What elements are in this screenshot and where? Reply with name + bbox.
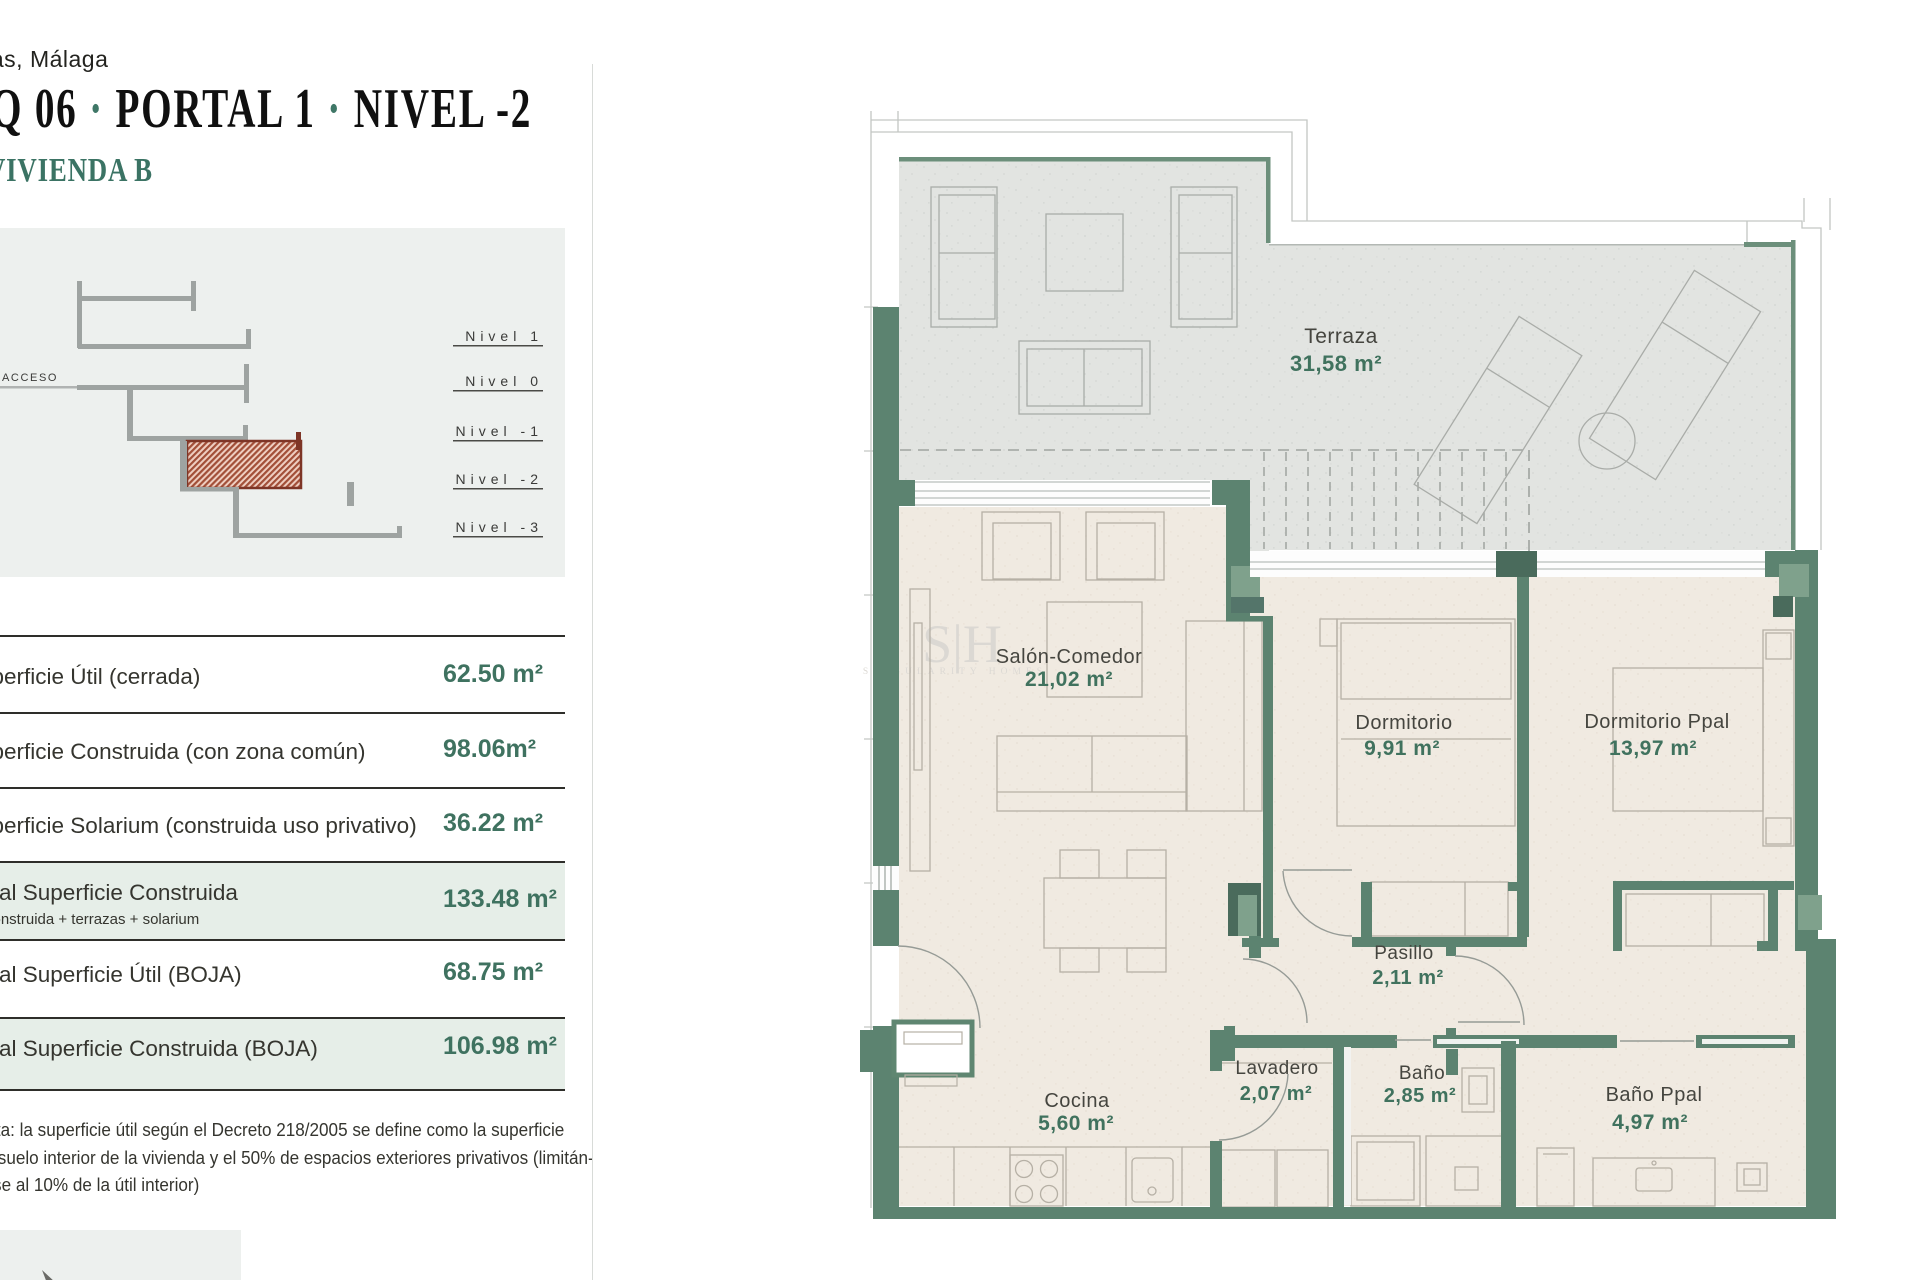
svg-text:2,11 m²: 2,11 m²: [1372, 967, 1443, 989]
svg-text:Terraza: Terraza: [1304, 325, 1378, 348]
svg-text:Baño: Baño: [1399, 1063, 1445, 1084]
svg-text:Salón-Comedor: Salón-Comedor: [996, 646, 1143, 668]
svg-text:9,91 m²: 9,91 m²: [1364, 737, 1440, 760]
svg-text:Nivel -2: Nivel -2: [456, 471, 543, 487]
svg-text:Nivel -1: Nivel -1: [456, 423, 543, 439]
svg-text:Nivel 0: Nivel 0: [465, 373, 543, 389]
svg-text:5,60 m²: 5,60 m²: [1038, 1112, 1114, 1135]
svg-text:31,58 m²: 31,58 m²: [1290, 351, 1382, 376]
svg-text:Dormitorio Ppal: Dormitorio Ppal: [1584, 711, 1729, 733]
svg-text:Nivel -3: Nivel -3: [456, 519, 543, 535]
svg-text:Cocina: Cocina: [1044, 1090, 1110, 1112]
svg-text:S|H: S|H: [922, 614, 1002, 674]
svg-text:4,97 m²: 4,97 m²: [1612, 1111, 1688, 1134]
svg-text:Pasillo: Pasillo: [1374, 943, 1433, 964]
svg-text:ACCESO: ACCESO: [2, 372, 58, 384]
svg-text:Baño Ppal: Baño Ppal: [1606, 1084, 1703, 1106]
svg-text:Dormitorio: Dormitorio: [1355, 712, 1452, 734]
svg-text:Nivel 1: Nivel 1: [465, 328, 543, 344]
svg-text:2,85 m²: 2,85 m²: [1384, 1085, 1456, 1107]
svg-text:Lavadero: Lavadero: [1235, 1058, 1318, 1079]
svg-text:21,02 m²: 21,02 m²: [1025, 668, 1113, 691]
svg-text:13,97 m²: 13,97 m²: [1609, 737, 1697, 760]
svg-text:2,07 m²: 2,07 m²: [1240, 1083, 1312, 1105]
